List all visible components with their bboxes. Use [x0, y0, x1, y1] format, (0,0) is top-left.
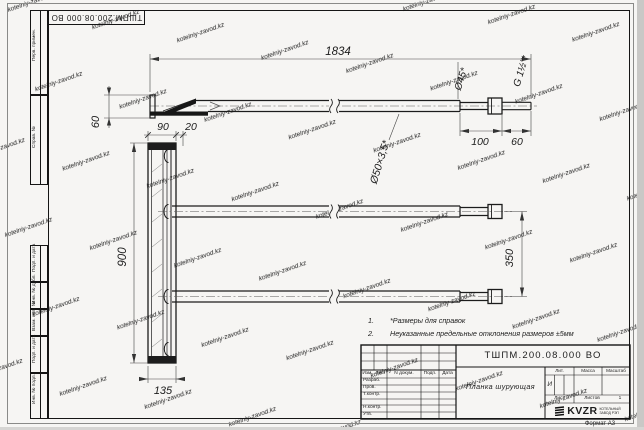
row-tkontr: Т.контр. [361, 392, 387, 399]
stamp-podp-data-2: Подп. и дата [30, 336, 48, 373]
row-prov: Пров. [361, 385, 387, 392]
stamp-perv-primen: Перв. примен. [30, 10, 48, 95]
stamp-label: Подп. и дата [32, 256, 38, 272]
scale-header: Масштаб [602, 367, 630, 375]
note-number: 2. [368, 328, 390, 341]
stamp-divider [40, 337, 41, 372]
stamp-divider [40, 96, 41, 184]
stamp-divider [40, 374, 41, 418]
note-number: 1. [368, 315, 390, 328]
col-dokum: N докум. [387, 370, 421, 378]
note-text: *Размеры для справок [390, 315, 465, 328]
note-1: 1. *Размеры для справок [368, 315, 618, 328]
col-data: Дата [439, 370, 456, 378]
top-doc-number-box: ТШПМ.200.08.000 ВО [48, 10, 145, 25]
stamp-divider [40, 11, 41, 94]
sheet-label: Лист [545, 395, 574, 403]
page-edge-right [637, 0, 644, 430]
top-doc-number: ТШПМ.200.08.000 ВО [51, 13, 142, 22]
stamp-label: Подп. и дата [32, 347, 38, 363]
row-razrab: Разраб. [361, 378, 387, 385]
stamp-label: Справ. № [32, 132, 38, 148]
logo-sub-line2: ЗАВОД РЭП [599, 411, 618, 415]
part-name: Планка шурующая [456, 367, 545, 407]
stamp-vzam-inv: Взам. инв. № [30, 309, 48, 336]
stamp-divider [40, 310, 41, 335]
notes: 1. *Размеры для справок 2. Неуказанные п… [368, 315, 618, 340]
row-utv: Утв. [361, 412, 387, 419]
stamp-divider [40, 283, 41, 308]
note-2: 2. Неуказанные предельные отклонения раз… [368, 328, 618, 341]
sheets-label: Листов [574, 395, 610, 403]
stamp-label: Взам. инв. № [32, 315, 38, 331]
sheets-value: 1 [610, 395, 630, 403]
coil-icon [554, 406, 565, 416]
col-podp: Подп. [421, 370, 439, 378]
stamp-divider [40, 246, 41, 281]
format-label: Формат А3 [570, 420, 630, 428]
drawing-sheet: kotelniy-zavod.kz kotelniy-zavod.kz [0, 0, 644, 430]
col-izm: Изм. [361, 370, 374, 378]
company-logo: KVZR КОТЕЛЬНЫЙ ЗАВОД РЭП [545, 403, 630, 419]
stamp-sprav-no: Справ. № [30, 95, 48, 185]
logo-text: KVZR [567, 405, 597, 417]
row-nkontr: Н.контр. [361, 405, 387, 412]
stamp-label: Перв. примен. [32, 45, 38, 61]
title-block-doc-number: ТШПМ.200.08.000 ВО [456, 347, 630, 365]
stamp-inv-podl: Инв. № подл. [30, 373, 48, 419]
lit-header: Лит. [545, 367, 574, 375]
mass-header: Масса [574, 367, 602, 375]
note-text: Неуказанные предельные отклонения размер… [390, 328, 574, 341]
col-list: Лист [374, 370, 387, 378]
logo-subtitle: КОТЕЛЬНЫЙ ЗАВОД РЭП [599, 407, 620, 415]
stamp-label: Инв. № подл. [32, 388, 38, 404]
lit-value: И [545, 375, 555, 395]
